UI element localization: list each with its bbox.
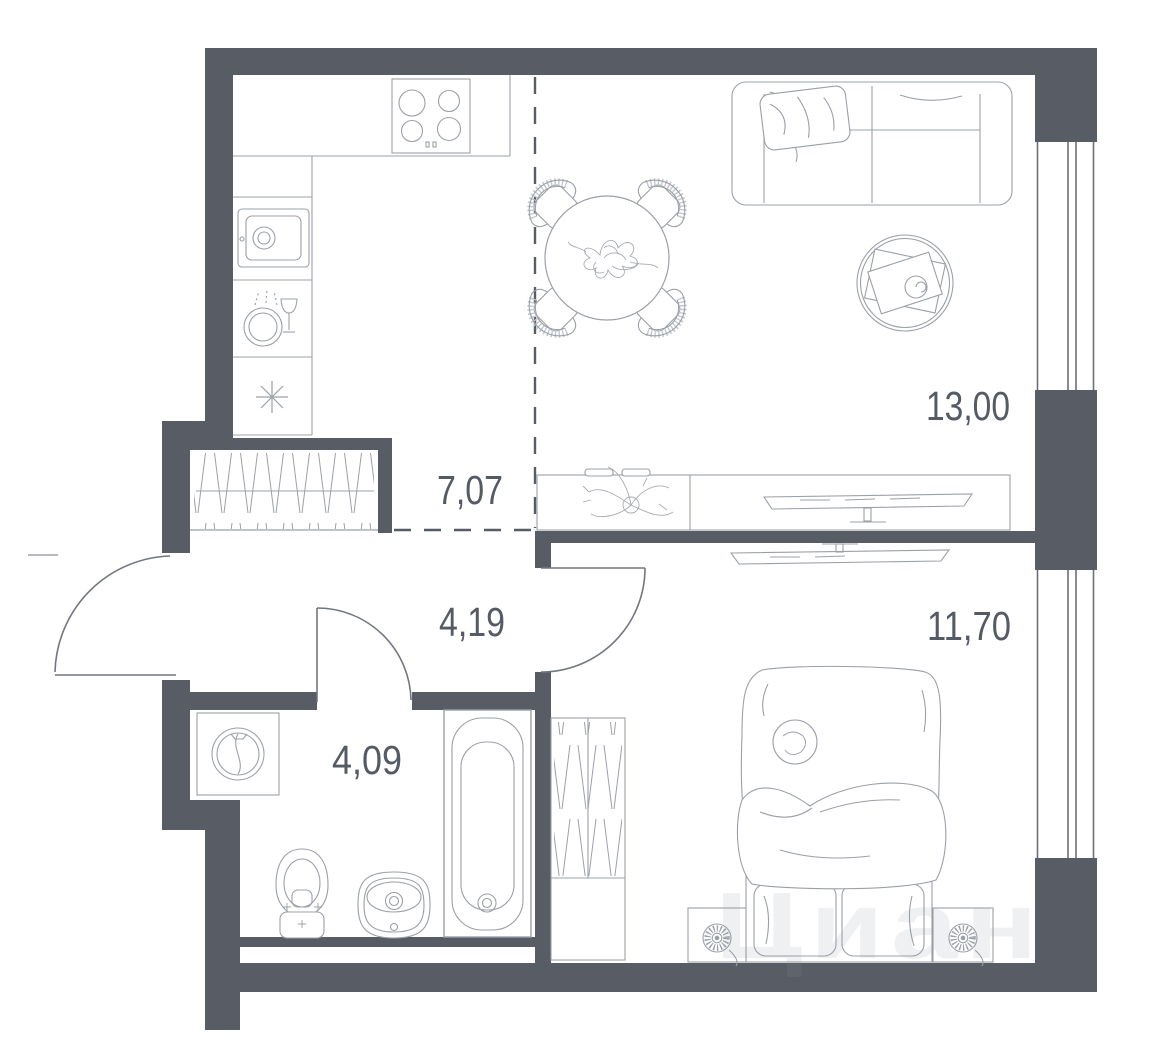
floor-plan-drawing: 7,07 13,00 4,19 4,09 11,70 Циан [0, 0, 1150, 1040]
coffee-table-icon [857, 235, 953, 331]
bedroom-area-label: 11,70 [927, 603, 1011, 649]
wall-top [205, 48, 1035, 75]
living-area-label: 13,00 [926, 383, 1010, 429]
toilet-icon [276, 849, 328, 938]
wall-left-upper [205, 48, 233, 421]
wall-bathroom-bottom-inner [238, 937, 537, 947]
wall-window-pier [1035, 390, 1097, 570]
dining-set [518, 169, 696, 347]
kitchen-area-label: 7,07 [437, 467, 503, 513]
wall-left-mid [162, 450, 190, 553]
hall-wardrobe-icon [190, 453, 378, 530]
wall-bedroom-door-stub [535, 543, 551, 568]
wall-living-bedroom [535, 531, 1035, 543]
wardrobe-icon [551, 718, 625, 960]
wall-bathroom-top-right [412, 692, 551, 710]
stove-icon [392, 79, 470, 153]
wall-closet-top [190, 438, 392, 450]
bathroom-area-label: 4,09 [332, 737, 402, 783]
hallway-area-label: 4,19 [439, 599, 505, 645]
wall-left-jog [162, 800, 240, 830]
wall-bathroom-left [205, 830, 240, 963]
wall-bathroom-bedroom [535, 672, 551, 963]
dining-table-icon [545, 196, 669, 320]
sofa-pillow-icon [759, 85, 851, 151]
washing-machine-icon [197, 713, 279, 795]
bathtub-icon [444, 710, 531, 937]
wall-bathroom-top-left [163, 692, 317, 710]
wall-corner-top-right [1035, 48, 1097, 142]
wall-closet-right [378, 450, 392, 533]
floor-plan-page: 7,07 13,00 4,19 4,09 11,70 Циан [0, 0, 1150, 1040]
washbasin-icon [358, 872, 430, 938]
wall-bottom-left-tab [205, 963, 240, 1030]
tv-console [537, 467, 1010, 530]
sofa-icon [732, 82, 1012, 205]
watermark: Циан [715, 873, 1045, 979]
